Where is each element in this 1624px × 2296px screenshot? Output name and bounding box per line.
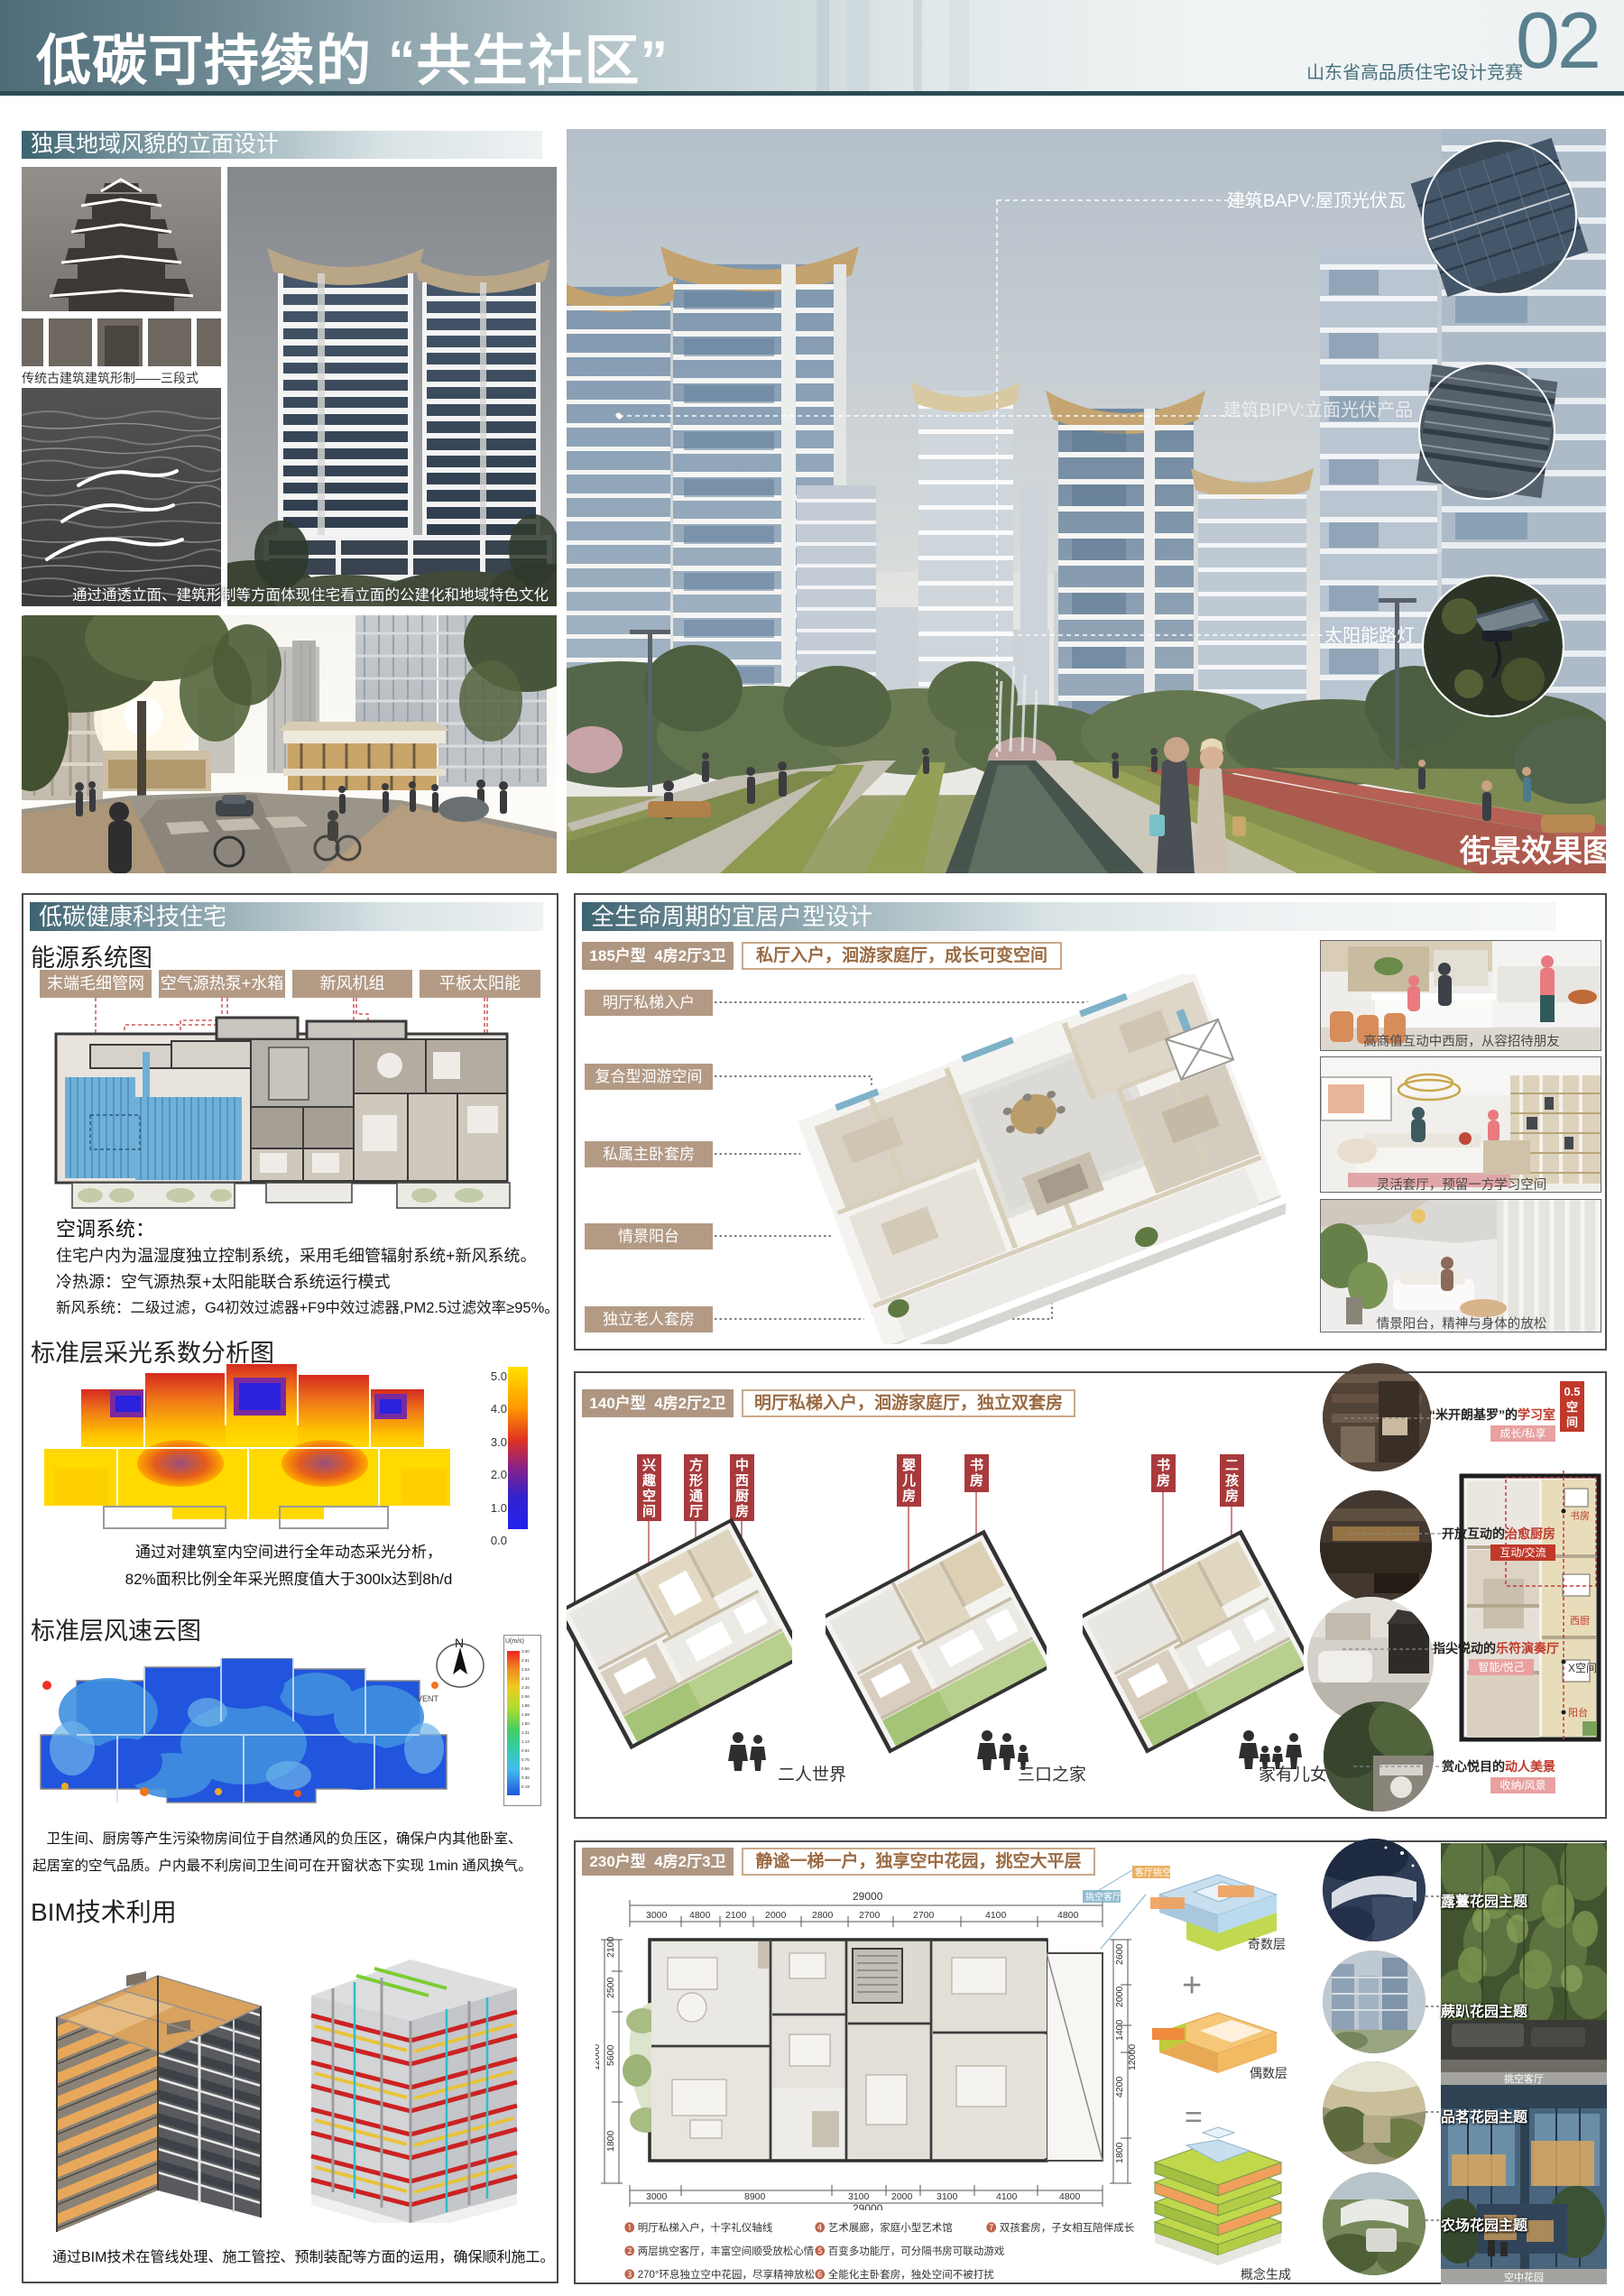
svg-text:情景阳台，精神与身体的放松: 情景阳台，精神与身体的放松 — [1377, 1316, 1547, 1332]
svg-text:2000: 2000 — [891, 2191, 913, 2202]
svg-text:8900: 8900 — [744, 2191, 766, 2202]
svg-text:建筑BIPV:立面光伏产品: 建筑BIPV:立面光伏产品 — [1223, 400, 1413, 420]
svg-text:4200: 4200 — [1114, 2076, 1125, 2098]
svg-text:29000: 29000 — [853, 1890, 883, 1903]
svg-text:客厅挑空: 客厅挑空 — [1135, 1867, 1171, 1878]
svg-text:N: N — [455, 1636, 464, 1650]
svg-text:太阳能路灯: 太阳能路灯 — [1324, 625, 1415, 646]
svg-text:挑空客厅: 挑空客厅 — [1504, 2072, 1544, 2085]
svg-text:4800: 4800 — [1059, 2191, 1081, 2202]
svg-text:2800: 2800 — [812, 1910, 834, 1921]
svg-text:2100: 2100 — [605, 1936, 616, 1958]
svg-text:1800: 1800 — [605, 2130, 616, 2152]
svg-text:2700: 2700 — [913, 1910, 935, 1921]
svg-text:4800: 4800 — [1057, 1910, 1079, 1921]
svg-text:1800: 1800 — [1114, 2142, 1125, 2163]
svg-text:概念生成: 概念生成 — [1241, 2267, 1291, 2281]
svg-text:街景效果图: 街景效果图 — [1459, 834, 1606, 869]
svg-text:4100: 4100 — [985, 1910, 1007, 1921]
svg-text:4100: 4100 — [996, 2191, 1018, 2202]
svg-text:2500: 2500 — [605, 1977, 616, 1998]
svg-text:5600: 5600 — [605, 2044, 616, 2066]
svg-text:2700: 2700 — [859, 1910, 881, 1921]
svg-text:29000: 29000 — [853, 2202, 883, 2210]
svg-text:+: + — [1182, 1967, 1202, 2005]
svg-text:灵活套厅，预留一方学习空间: 灵活套厅，预留一方学习空间 — [1377, 1177, 1547, 1193]
svg-text:2100: 2100 — [725, 1910, 747, 1921]
svg-text:挑空客厅: 挑空客厅 — [1085, 1891, 1121, 1903]
svg-text:偶数层: 偶数层 — [1250, 2066, 1287, 2080]
svg-text:4800: 4800 — [689, 1910, 711, 1921]
svg-text:建筑BAPV:屋顶光伏瓦: 建筑BAPV:屋顶光伏瓦 — [1227, 190, 1406, 211]
svg-text:3100: 3100 — [848, 2191, 870, 2202]
svg-text:2000: 2000 — [765, 1910, 787, 1921]
svg-text:1400: 1400 — [1114, 2019, 1125, 2041]
svg-text:3000: 3000 — [646, 1910, 668, 1921]
svg-text:12000: 12000 — [595, 2044, 602, 2070]
svg-text:3000: 3000 — [646, 2191, 668, 2202]
svg-text:奇数层: 奇数层 — [1248, 1937, 1286, 1951]
svg-text:空中花园: 空中花园 — [1504, 2271, 1544, 2283]
svg-text:=: = — [1185, 2100, 1203, 2135]
svg-text:3100: 3100 — [937, 2191, 958, 2202]
svg-text:高商值互动中西厨，从容招待朋友: 高商值互动中西厨，从容招待朋友 — [1363, 1034, 1560, 1049]
